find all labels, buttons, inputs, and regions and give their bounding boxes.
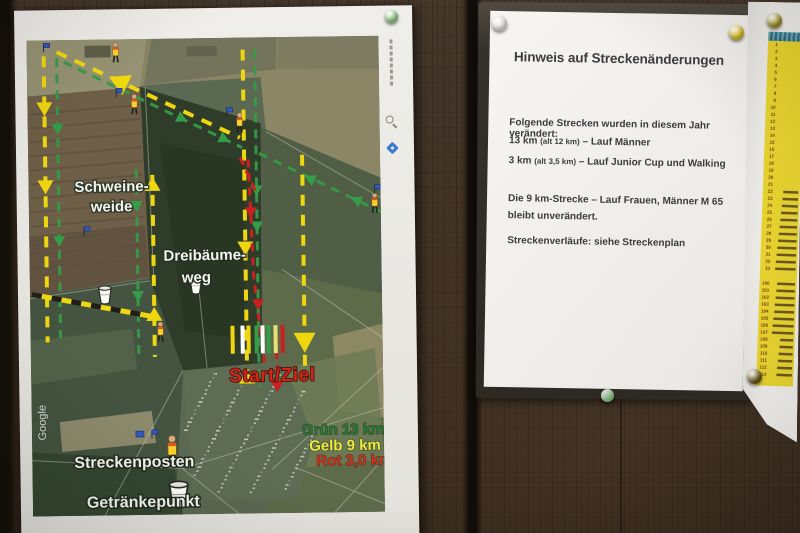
notice-sleeve: Hinweis auf Streckenänderungen Folgende … <box>476 2 756 400</box>
start-list-name-illegible <box>776 296 795 299</box>
notice-title: Hinweis auf Streckenänderungen <box>489 49 748 69</box>
start-list: 1234567891011121314151617181920212223242… <box>756 32 800 387</box>
search-icon <box>386 115 398 127</box>
label-start-finish: Start/Ziel <box>229 365 316 387</box>
start-list-name-illegible <box>783 197 799 200</box>
course-map-poster: Schweine- weide Dreibäume- weg Start/Zie… <box>14 5 419 533</box>
start-list-name-illegible <box>777 366 792 369</box>
start-list-name-illegible <box>777 282 795 285</box>
label-pig-pasture-2: weide <box>90 198 133 216</box>
notice-unchanged-line2: bleibt unverändert. <box>508 210 598 223</box>
start-list-name-illegible <box>775 303 795 306</box>
course-map: Schweine- weide Dreibäume- weg Start/Zie… <box>26 36 385 517</box>
push-pin-yellow-notice <box>729 25 744 40</box>
notice-footer: Streckenverläufe: siehe Streckenplan <box>507 235 735 250</box>
start-list-name-illegible <box>777 246 796 249</box>
start-list-name-illegible <box>780 218 797 221</box>
start-list-name-illegible <box>781 211 798 214</box>
change-2-desc: – Lauf Junior Cup und Walking <box>579 156 726 170</box>
start-list-name-illegible <box>773 317 794 320</box>
start-list-block2: 1001011021031041051061071081091101111121… <box>756 279 796 378</box>
start-list-name-illegible <box>782 204 798 207</box>
notice-board-photo: Schweine- weide Dreibäume- weg Start/Zie… <box>0 0 800 533</box>
label-three-trees-2: weg <box>181 269 211 286</box>
label-pig-pasture-1: Schweine- <box>74 178 148 196</box>
push-pin-green-map <box>385 10 398 23</box>
label-drink-legend: Getränkepunkt <box>87 493 201 512</box>
change-1-distance: 13 km <box>509 135 538 146</box>
push-pin-dark-list <box>747 369 762 384</box>
notice-unchanged-line1: Die 9 km-Strecke – Lauf Frauen, Männer M… <box>508 193 723 208</box>
search-icon-handle <box>392 123 397 128</box>
change-2-distance: 3 km <box>509 155 532 166</box>
label-three-trees-1: Dreibäume- <box>163 247 246 265</box>
notice-unchanged: Die 9 km-Strecke – Lauf Frauen, Männer M… <box>508 190 737 228</box>
print-margin-caption <box>389 37 393 85</box>
start-list-name-illegible <box>773 324 794 327</box>
start-list-name-illegible <box>776 373 792 376</box>
push-pin-white-notice <box>492 16 507 31</box>
board-plank-seam <box>620 388 622 533</box>
start-list-name-illegible <box>780 225 798 228</box>
start-list-name-illegible <box>778 359 793 362</box>
start-list-name-illegible <box>779 232 797 235</box>
start-list-name-illegible <box>777 253 797 256</box>
start-list-name-illegible <box>776 260 796 263</box>
map-watermark: Google <box>37 405 49 441</box>
directions-icon <box>386 142 399 155</box>
course-map-print: Schweine- weide Dreibäume- weg Start/Zie… <box>26 36 385 517</box>
start-list-name-illegible <box>779 345 793 348</box>
start-list-name-illegible <box>780 338 793 341</box>
legend-red: Rot 3,0 km <box>316 452 385 470</box>
start-list-name-illegible <box>783 190 798 193</box>
label-marshal-legend: Streckenposten <box>74 453 194 472</box>
notice-paper: Hinweis auf Streckenänderungen Folgende … <box>484 11 750 391</box>
push-pin-olive-list <box>767 13 782 28</box>
start-list-name-illegible <box>778 239 797 242</box>
start-list-block1: 1234567891011121314151617181920212223242… <box>760 41 800 273</box>
notice-change-2: 3 km (alt 3,5 km) – Lauf Junior Cup und … <box>509 155 737 170</box>
search-icon-lens <box>386 115 394 123</box>
push-pin-green-bottom <box>601 389 614 402</box>
start-list-name-illegible <box>779 352 793 355</box>
start-list-name-illegible <box>774 310 794 313</box>
change-2-old: (alt 3,5 km) <box>534 157 576 167</box>
change-1-old: (alt 12 km) <box>540 137 580 147</box>
change-1-desc: – Lauf Männer <box>582 136 650 148</box>
start-list-name-illegible <box>775 267 796 270</box>
start-list-name-illegible <box>772 331 794 334</box>
start-list-name-illegible <box>776 289 795 292</box>
